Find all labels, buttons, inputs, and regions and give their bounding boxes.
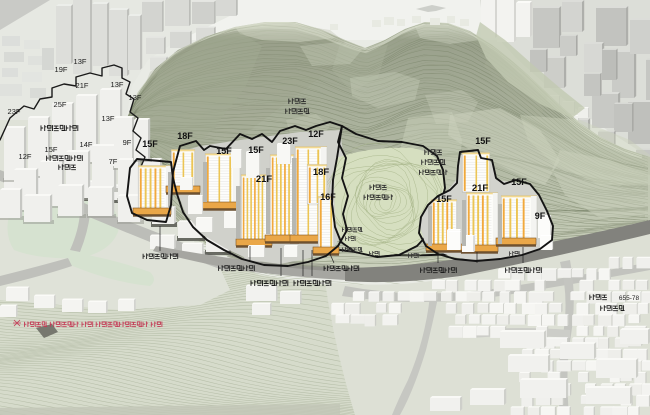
svg-text:25F: 25F: [54, 100, 67, 109]
svg-text:15F: 15F: [248, 145, 264, 155]
svg-text:23F: 23F: [282, 136, 298, 146]
svg-text:12F: 12F: [19, 152, 32, 161]
svg-text:9F: 9F: [535, 211, 546, 221]
svg-text:19F: 19F: [55, 65, 68, 74]
svg-text:655-78: 655-78: [619, 295, 640, 302]
svg-text:16F: 16F: [320, 192, 336, 202]
svg-text:15F: 15F: [142, 139, 158, 149]
svg-text:21F: 21F: [256, 174, 273, 185]
svg-text:12F: 12F: [308, 129, 324, 139]
svg-text:9F: 9F: [123, 138, 132, 147]
svg-text:13F: 13F: [129, 93, 142, 102]
svg-text:15F: 15F: [45, 145, 58, 154]
svg-text:21F: 21F: [76, 81, 89, 90]
svg-text:7F: 7F: [109, 157, 118, 166]
svg-text:14F: 14F: [80, 140, 93, 149]
svg-text:18F: 18F: [313, 167, 330, 178]
svg-text:15F: 15F: [511, 177, 527, 187]
svg-text:15F: 15F: [216, 146, 232, 156]
svg-text:13F: 13F: [102, 114, 115, 123]
svg-text:18F: 18F: [177, 131, 193, 141]
svg-text:21F: 21F: [472, 183, 489, 194]
svg-text:13F: 13F: [111, 80, 124, 89]
svg-text:15F: 15F: [475, 136, 491, 146]
svg-text:23F: 23F: [8, 107, 21, 116]
svg-text:13F: 13F: [74, 57, 87, 66]
svg-text:15F: 15F: [436, 194, 452, 204]
